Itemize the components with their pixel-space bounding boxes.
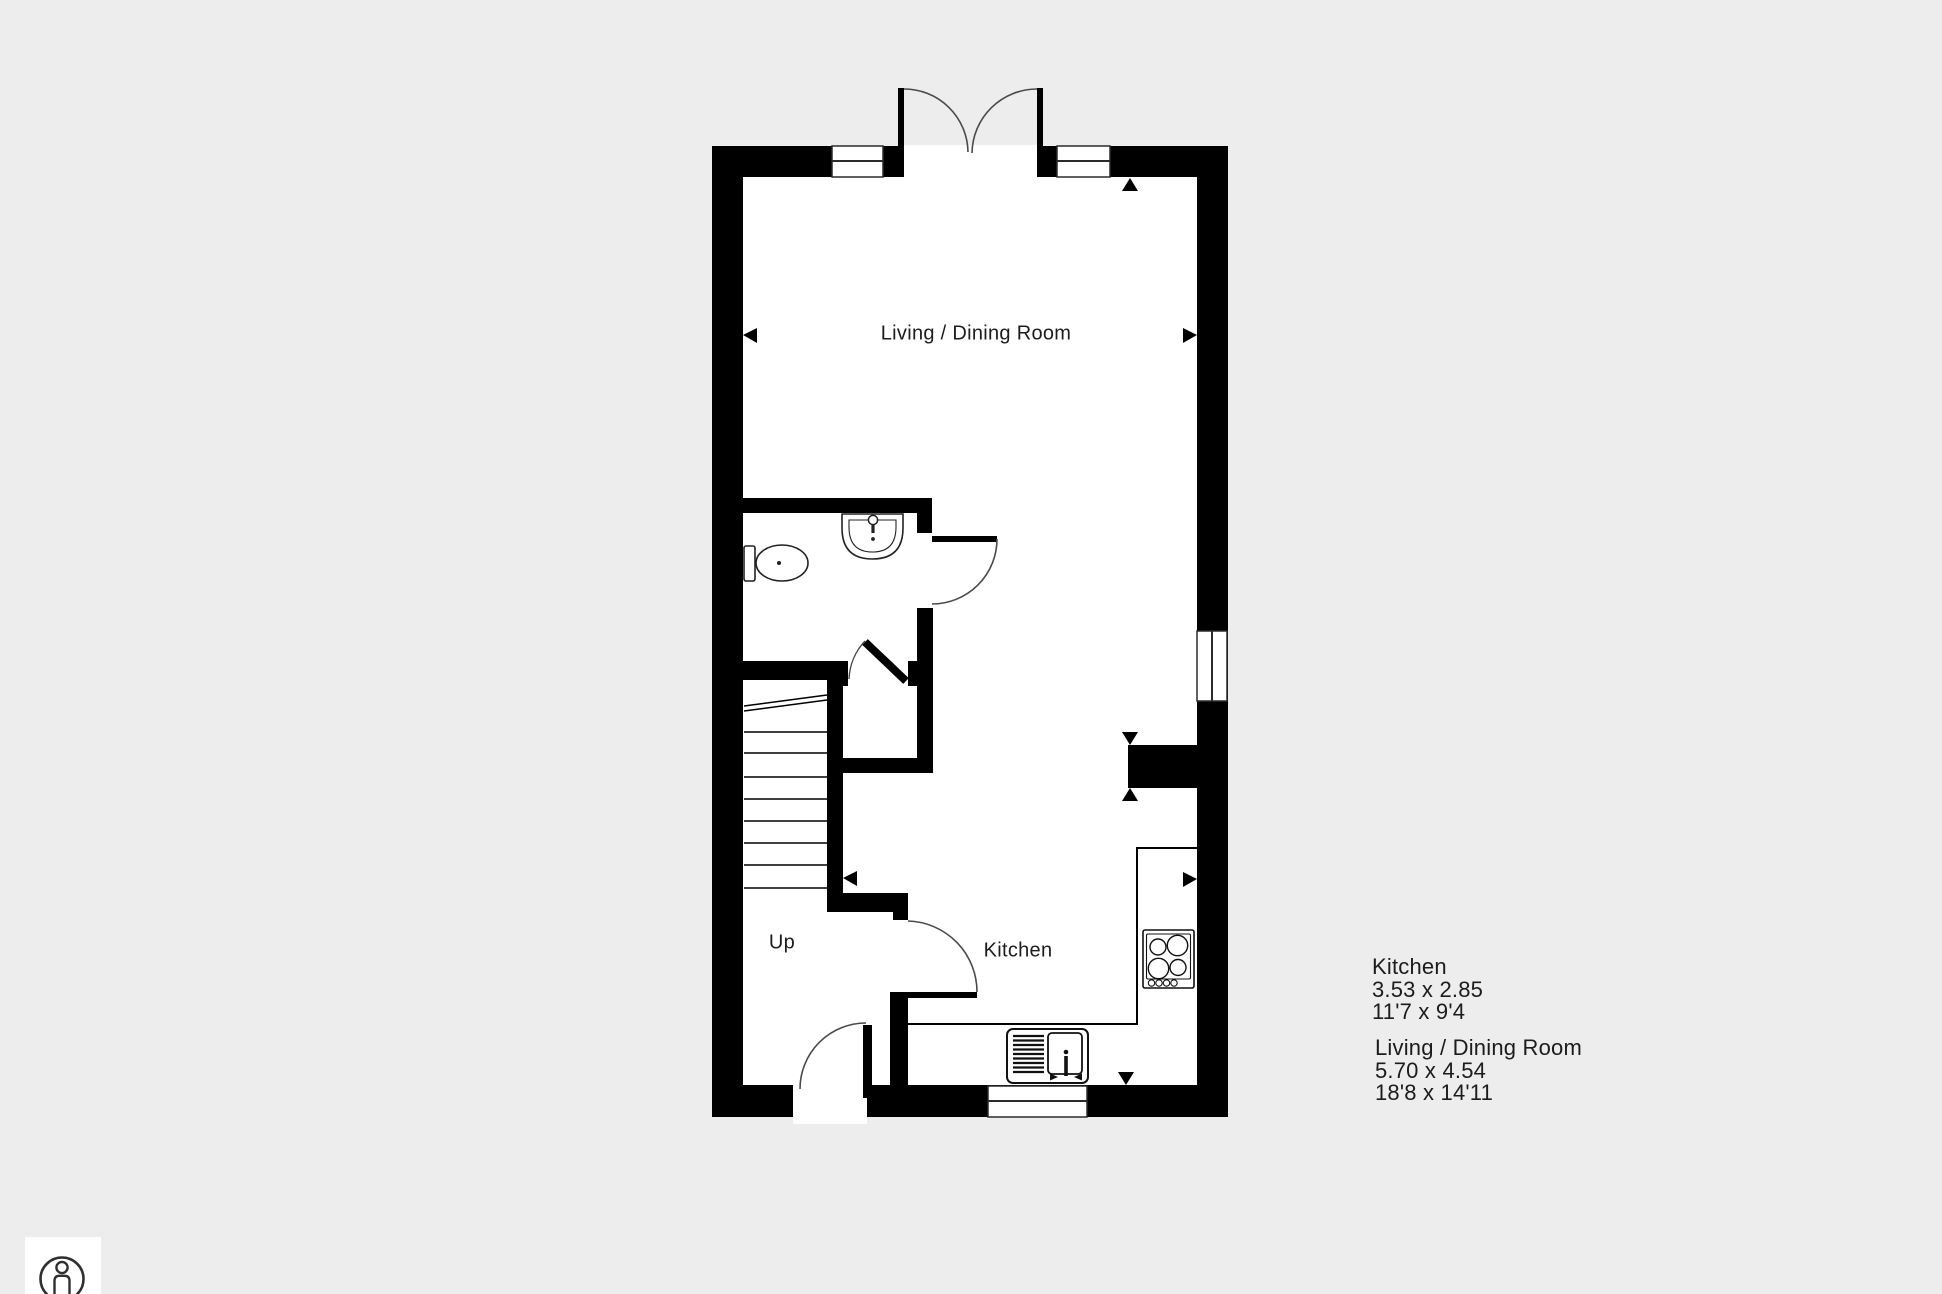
wall-wc-right-upper <box>917 498 932 533</box>
kitchen-dimensions-metric: 3.53 x 2.85 <box>1372 979 1483 1002</box>
wall-right-stub <box>1128 745 1197 788</box>
kitchen-dimensions-imperial: 11'7 x 9'4 <box>1372 1001 1483 1024</box>
jamb-hall-door-right <box>908 661 917 686</box>
jamb-kitchen-door-top <box>893 912 908 920</box>
living-dimensions-imperial: 18'8 x 14'11 <box>1375 1082 1582 1105</box>
jamb-patio-door-left <box>898 88 904 177</box>
patio-double-door-icon <box>904 89 1037 153</box>
wall-wc-right-lower <box>917 608 933 773</box>
living-dimensions-block: Living / Dining Room 5.70 x 4.54 18'8 x … <box>1375 1037 1582 1105</box>
wall-wc-top <box>743 498 932 513</box>
window-top-left-icon <box>832 146 883 177</box>
living-dining-room-label: Living / Dining Room <box>881 323 1072 346</box>
window-right-icon <box>1197 631 1227 701</box>
floorplan-drawing <box>0 0 1942 1294</box>
stairs-up-label: Up <box>769 932 795 955</box>
window-bottom-icon <box>988 1086 1087 1117</box>
entrance-door-opening <box>793 1085 867 1124</box>
wall-vestibule-bottom <box>842 758 933 773</box>
living-dimensions-metric: 5.70 x 4.54 <box>1375 1060 1582 1083</box>
kitchen-room-label: Kitchen <box>984 940 1053 963</box>
wall-hall-kitchen-divider <box>890 992 908 1085</box>
wall-stairs-right <box>827 661 843 893</box>
kitchen-dimensions-block: Kitchen 3.53 x 2.85 11'7 x 9'4 <box>1372 956 1483 1024</box>
floor-area <box>743 177 1197 1085</box>
kitchen-sink-icon <box>1007 1029 1088 1083</box>
kitchen-dimensions-title: Kitchen <box>1372 956 1483 979</box>
brand-logo <box>25 1237 101 1294</box>
bathroom-sink-icon <box>842 514 903 559</box>
floorplan-page: Living / Dining Room Kitchen Up Kitchen … <box>0 0 1942 1294</box>
hob-icon <box>1143 930 1194 988</box>
toilet-icon <box>744 545 808 581</box>
patio-door-opening <box>903 145 1038 178</box>
jamb-patio-door-right <box>1037 88 1043 177</box>
wall-stairs-bottom <box>827 893 908 912</box>
window-top-right-icon <box>1057 146 1110 177</box>
living-dimensions-title: Living / Dining Room <box>1375 1037 1582 1060</box>
